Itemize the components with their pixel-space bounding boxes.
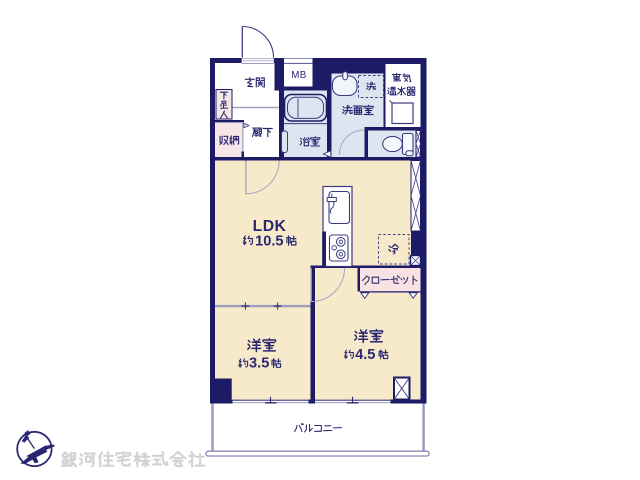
svg-text:3.5: 3.5 bbox=[249, 356, 269, 372]
svg-text:MB: MB bbox=[291, 70, 306, 81]
svg-text:LDK: LDK bbox=[253, 218, 287, 235]
svg-text:4.5: 4.5 bbox=[355, 347, 375, 363]
svg-text:10.5: 10.5 bbox=[255, 233, 283, 249]
